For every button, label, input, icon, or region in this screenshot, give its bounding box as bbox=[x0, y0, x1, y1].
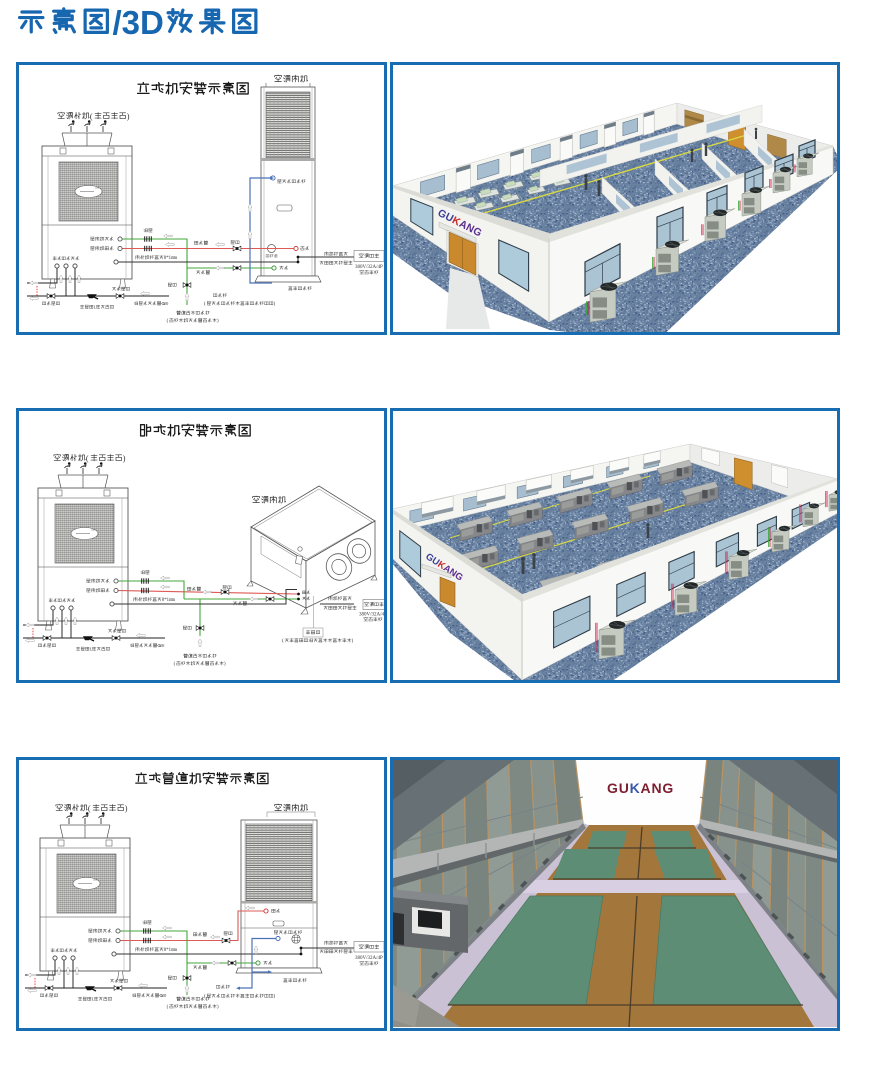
svg-text:): ) bbox=[125, 804, 128, 813]
svg-text:(: ( bbox=[174, 662, 176, 667]
svg-text:0: 0 bbox=[166, 301, 169, 306]
svg-text:(: ( bbox=[204, 995, 206, 1000]
svg-text:m: m bbox=[171, 598, 175, 603]
svg-text:0: 0 bbox=[162, 643, 165, 648]
svg-text:m: m bbox=[173, 948, 177, 953]
svg-text:U: U bbox=[94, 305, 98, 310]
svg-text:(: ( bbox=[204, 302, 206, 307]
svg-text:0: 0 bbox=[164, 993, 167, 998]
svg-text:(: ( bbox=[167, 1005, 169, 1010]
svg-text:380V/32A/4P: 380V/32A/4P bbox=[355, 265, 383, 270]
svg-text:): ) bbox=[224, 662, 226, 667]
svg-text:380V/32A/4P: 380V/32A/4P bbox=[355, 956, 383, 961]
svg-text:U: U bbox=[90, 647, 94, 652]
svg-text:(: ( bbox=[282, 639, 284, 644]
svg-text:380V/32A/4P: 380V/32A/4P bbox=[359, 613, 384, 618]
svg-text:U: U bbox=[92, 997, 96, 1002]
svg-text:GUKANG: GUKANG bbox=[607, 780, 674, 796]
svg-text:(: ( bbox=[167, 319, 169, 324]
svg-text:(: ( bbox=[90, 112, 93, 121]
svg-text:): ) bbox=[127, 112, 130, 121]
svg-text:): ) bbox=[274, 995, 276, 1000]
svg-text:): ) bbox=[274, 302, 276, 307]
svg-text:): ) bbox=[123, 454, 126, 463]
svg-text:/3D: /3D bbox=[113, 6, 164, 40]
svg-text:(: ( bbox=[86, 454, 89, 463]
svg-text:(: ( bbox=[88, 804, 91, 813]
svg-text:): ) bbox=[352, 639, 354, 644]
svg-text:): ) bbox=[217, 319, 219, 324]
svg-text:m: m bbox=[173, 256, 177, 261]
svg-text:): ) bbox=[217, 1005, 219, 1010]
